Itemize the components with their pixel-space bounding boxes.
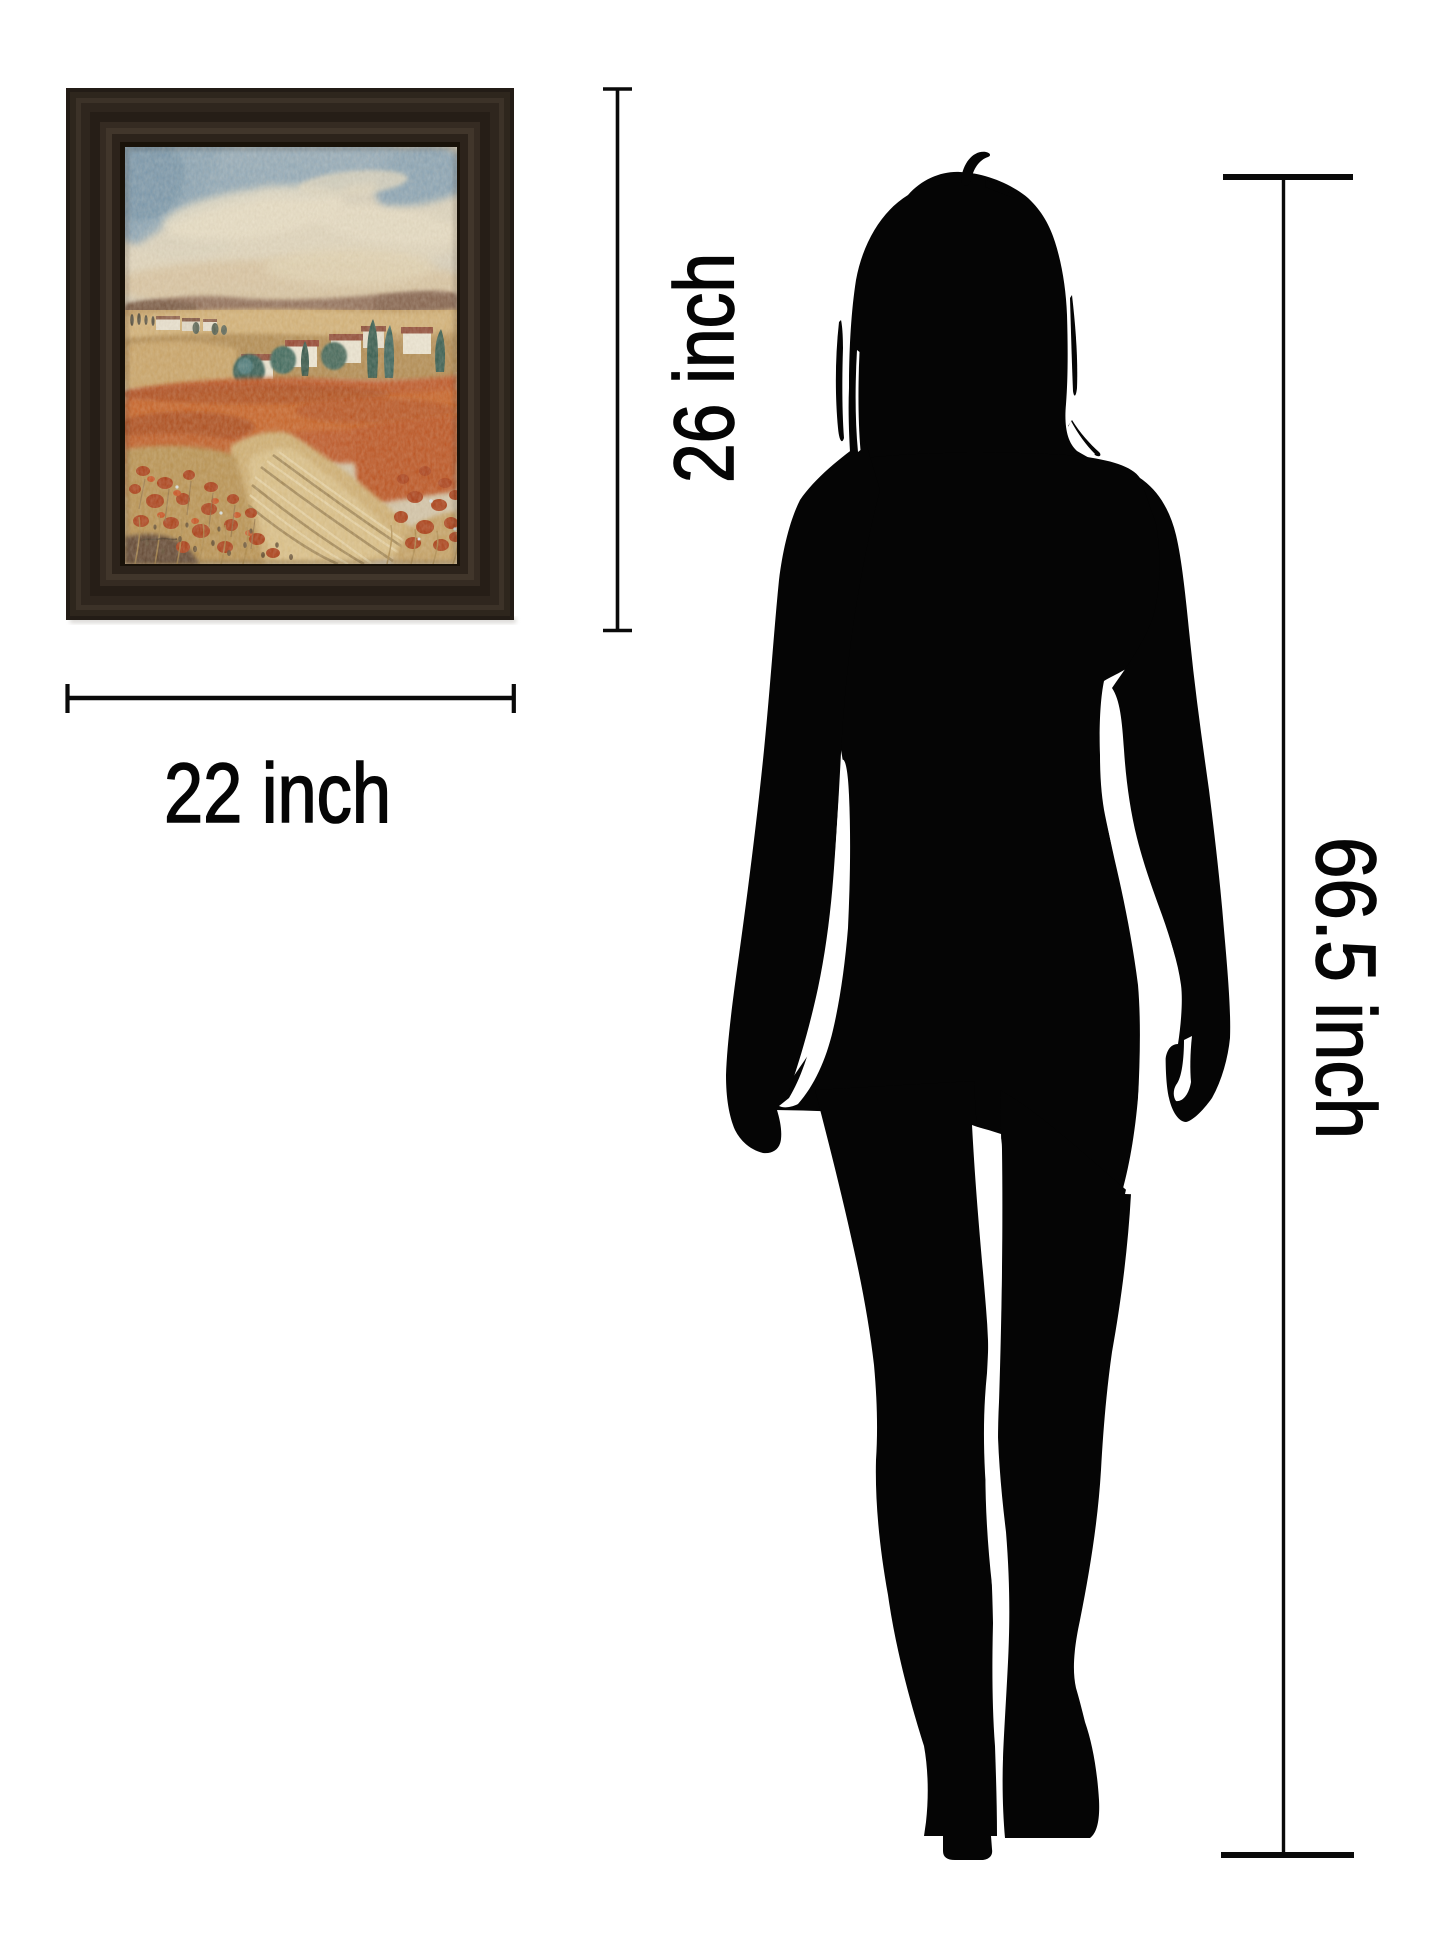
- svg-text:66.5 inch: 66.5 inch: [1299, 837, 1393, 1139]
- svg-text:26 inch: 26 inch: [657, 253, 751, 483]
- svg-text:22 inch: 22 inch: [164, 746, 391, 840]
